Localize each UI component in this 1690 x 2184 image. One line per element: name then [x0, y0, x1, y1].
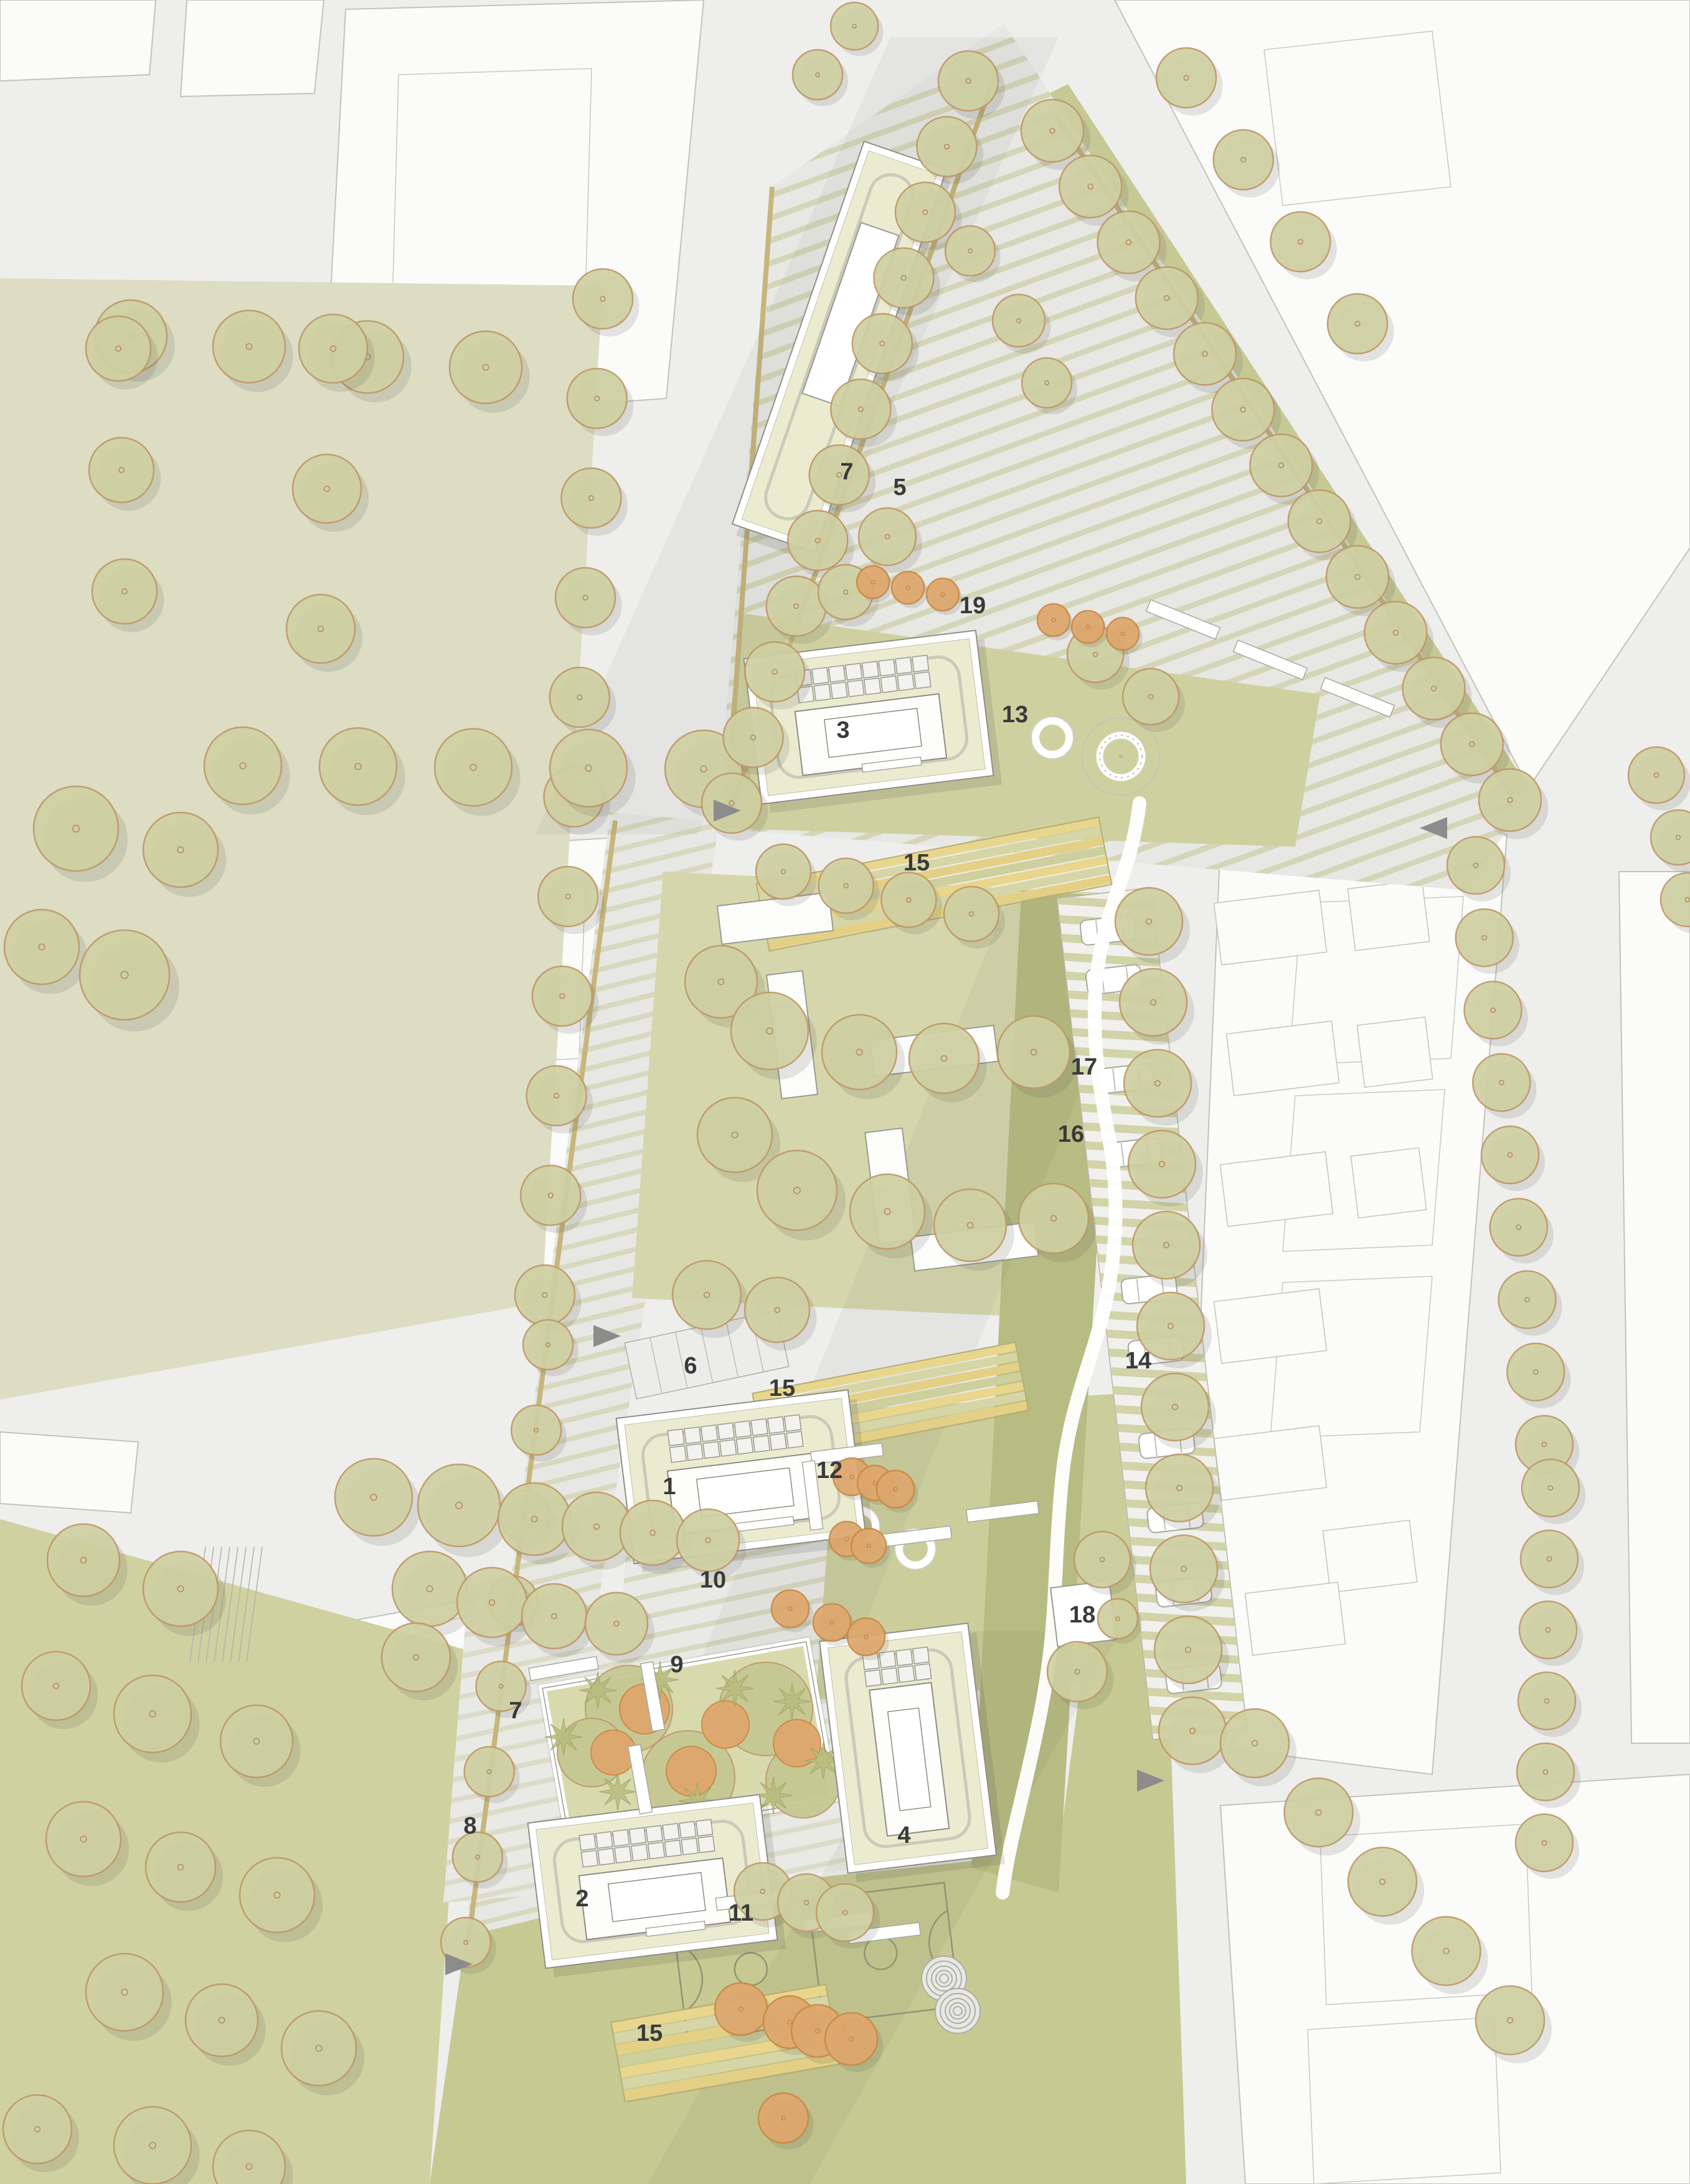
site-plan-page: 7519313151716615141121018974821115 [0, 0, 1690, 2184]
plan-label-12: 12 [816, 1457, 843, 1484]
plan-label-7: 7 [840, 459, 853, 485]
skylight [880, 676, 897, 693]
skylight [912, 655, 929, 672]
palm-plant [599, 1773, 636, 1810]
skylight [814, 684, 831, 701]
skylight [881, 1668, 898, 1685]
plan-label-2: 2 [575, 1886, 588, 1912]
skylight [812, 667, 829, 684]
row-house [1220, 1152, 1333, 1226]
skylight [847, 680, 864, 697]
plan-label-17: 17 [1071, 1054, 1097, 1080]
skylight [669, 1446, 686, 1462]
skylight [785, 1414, 801, 1431]
row-house [1245, 1582, 1345, 1655]
plan-label-18: 18 [1069, 1602, 1095, 1628]
plan-label-9: 9 [670, 1652, 683, 1678]
palm-plant [545, 1718, 582, 1756]
skylight [879, 659, 895, 676]
skylight [648, 1842, 665, 1859]
plan-label-4: 4 [897, 1822, 910, 1848]
row-house [1214, 1289, 1327, 1363]
row-house [1348, 880, 1429, 951]
plan-label-15: 15 [769, 1375, 795, 1401]
skylight [864, 1670, 881, 1687]
row-house [1214, 890, 1327, 965]
plan-label-6: 6 [684, 1353, 697, 1379]
skylight [701, 1425, 718, 1442]
skylight [613, 1830, 630, 1847]
skylight [864, 678, 881, 695]
skylight [898, 1666, 915, 1683]
planter-orange-tree [666, 1746, 716, 1796]
skylight [720, 1439, 737, 1456]
skylight [703, 1442, 720, 1459]
plan-label-10: 10 [700, 1567, 726, 1593]
skylight [668, 1429, 684, 1446]
skylight [897, 674, 914, 690]
skylight [753, 1436, 770, 1452]
site-plan-drawing: 7519313151716615141121018974821115 [0, 0, 1690, 2184]
plan-label-16: 16 [1058, 1121, 1084, 1147]
skylight [914, 672, 931, 689]
skylight [895, 657, 912, 674]
skylight [696, 1819, 713, 1836]
plan-label-3: 3 [836, 717, 849, 743]
skylight [581, 1850, 598, 1867]
palm-plant [773, 1683, 811, 1720]
skylight [596, 1832, 613, 1848]
skylight [913, 1647, 930, 1664]
skylight [598, 1848, 615, 1865]
skylight [681, 1838, 698, 1855]
skylight [646, 1825, 663, 1842]
building-4 [819, 1622, 1005, 1883]
skylight [770, 1433, 786, 1450]
skylight [831, 682, 847, 699]
plan-label-8: 8 [463, 1813, 476, 1839]
skylight [862, 661, 879, 678]
skylight [915, 1664, 932, 1680]
plan-label-11: 11 [729, 1900, 753, 1926]
skylight [686, 1444, 703, 1461]
skylight [786, 1431, 803, 1448]
plan-label-13: 13 [1002, 702, 1028, 728]
skylight [751, 1419, 768, 1436]
skylight [737, 1438, 753, 1454]
plan-label-7: 7 [509, 1698, 522, 1724]
plan-label-19: 19 [960, 593, 986, 619]
skylight [829, 666, 846, 682]
plan-label-15: 15 [636, 2020, 663, 2046]
plan-label-14: 14 [1125, 1348, 1151, 1374]
row-house [1214, 1426, 1327, 1500]
skylight [631, 1844, 648, 1861]
skylight [846, 664, 862, 680]
block-tl-strip2 [181, 0, 324, 96]
block-right-edge [1619, 872, 1690, 1743]
skylight [734, 1421, 751, 1438]
row-house [1351, 1148, 1426, 1218]
skylight [579, 1833, 596, 1850]
row-house [1357, 1017, 1432, 1088]
skylight [684, 1427, 701, 1444]
plan-label-5: 5 [893, 474, 906, 501]
skylight [768, 1417, 785, 1434]
skylight [679, 1822, 696, 1838]
skylight [630, 1828, 646, 1845]
block-left-small [0, 1432, 138, 1513]
skylight [896, 1649, 913, 1666]
palm-plant [579, 1672, 616, 1709]
planter-orange-tree [702, 1701, 749, 1748]
skylight [664, 1840, 681, 1857]
plan-label-15: 15 [904, 850, 930, 876]
plan-label-1: 1 [663, 1474, 676, 1500]
skylight [698, 1836, 715, 1853]
palm-plant [716, 1670, 753, 1707]
skylight [718, 1423, 735, 1440]
row-house [1227, 1021, 1339, 1096]
spiral-mound [935, 1989, 980, 2033]
block-tl-strip1 [0, 0, 156, 81]
skylight [663, 1824, 679, 1840]
skylight [615, 1847, 631, 1863]
